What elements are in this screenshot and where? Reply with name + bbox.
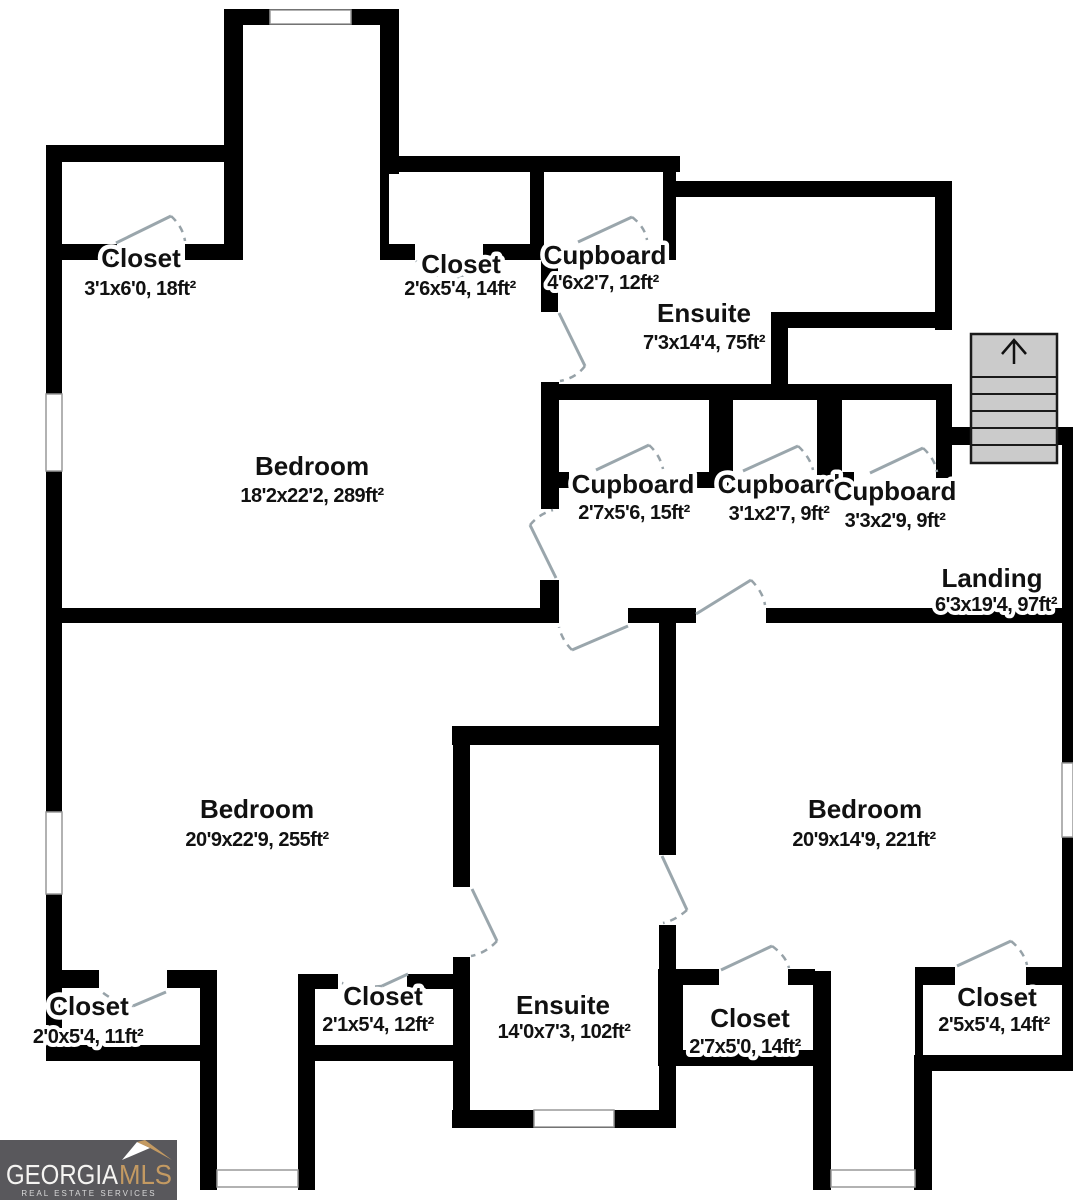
svg-text:2'0x5'4, 11ft²: 2'0x5'4, 11ft² <box>33 1026 144 1048</box>
svg-text:3'1x2'7, 9ft²: 3'1x2'7, 9ft² <box>729 503 831 525</box>
svg-text:2'5x5'4, 14ft²: 2'5x5'4, 14ft² <box>938 1014 1050 1036</box>
svg-text:Cupboard: Cupboard <box>718 469 841 499</box>
svg-text:Ensuite: Ensuite <box>516 990 610 1020</box>
svg-text:Ensuite: Ensuite <box>657 298 751 328</box>
svg-text:Closet: Closet <box>710 1003 790 1033</box>
svg-text:4'6x2'7, 12ft²: 4'6x2'7, 12ft² <box>547 272 659 294</box>
svg-text:3'1x6'0, 18ft²: 3'1x6'0, 18ft² <box>84 278 196 300</box>
svg-text:GEORGIA: GEORGIA <box>6 1159 118 1190</box>
svg-text:Bedroom: Bedroom <box>808 794 922 824</box>
svg-text:Closet: Closet <box>957 982 1037 1012</box>
svg-text:Closet: Closet <box>421 249 501 279</box>
svg-text:MLS: MLS <box>119 1159 172 1190</box>
svg-text:Cupboard: Cupboard <box>834 476 957 506</box>
svg-text:2'1x5'4, 12ft²: 2'1x5'4, 12ft² <box>322 1014 434 1036</box>
svg-text:Closet: Closet <box>101 243 181 273</box>
svg-text:REAL ESTATE SERVICES: REAL ESTATE SERVICES <box>21 1189 156 1198</box>
svg-text:18'2x22'2, 289ft²: 18'2x22'2, 289ft² <box>240 485 384 507</box>
svg-text:2'7x5'6, 15ft²: 2'7x5'6, 15ft² <box>578 502 690 524</box>
svg-text:Closet: Closet <box>49 991 129 1021</box>
svg-text:Bedroom: Bedroom <box>255 451 369 481</box>
svg-text:Bedroom: Bedroom <box>200 794 314 824</box>
svg-text:Landing: Landing <box>941 563 1042 593</box>
svg-text:Cupboard: Cupboard <box>544 240 667 270</box>
svg-text:14'0x7'3, 102ft²: 14'0x7'3, 102ft² <box>498 1021 632 1043</box>
svg-text:Cupboard: Cupboard <box>572 469 695 499</box>
svg-text:20'9x22'9, 255ft²: 20'9x22'9, 255ft² <box>185 829 329 851</box>
svg-text:Closet: Closet <box>343 981 423 1011</box>
svg-text:7'3x14'4, 75ft²: 7'3x14'4, 75ft² <box>643 332 766 354</box>
svg-text:2'7x5'0, 14ft²: 2'7x5'0, 14ft² <box>689 1036 801 1058</box>
svg-text:3'3x2'9, 9ft²: 3'3x2'9, 9ft² <box>845 510 947 532</box>
svg-text:6'3x19'4, 97ft²: 6'3x19'4, 97ft² <box>935 594 1058 616</box>
svg-text:2'6x5'4, 14ft²: 2'6x5'4, 14ft² <box>404 278 516 300</box>
svg-text:20'9x14'9, 221ft²: 20'9x14'9, 221ft² <box>792 829 936 851</box>
